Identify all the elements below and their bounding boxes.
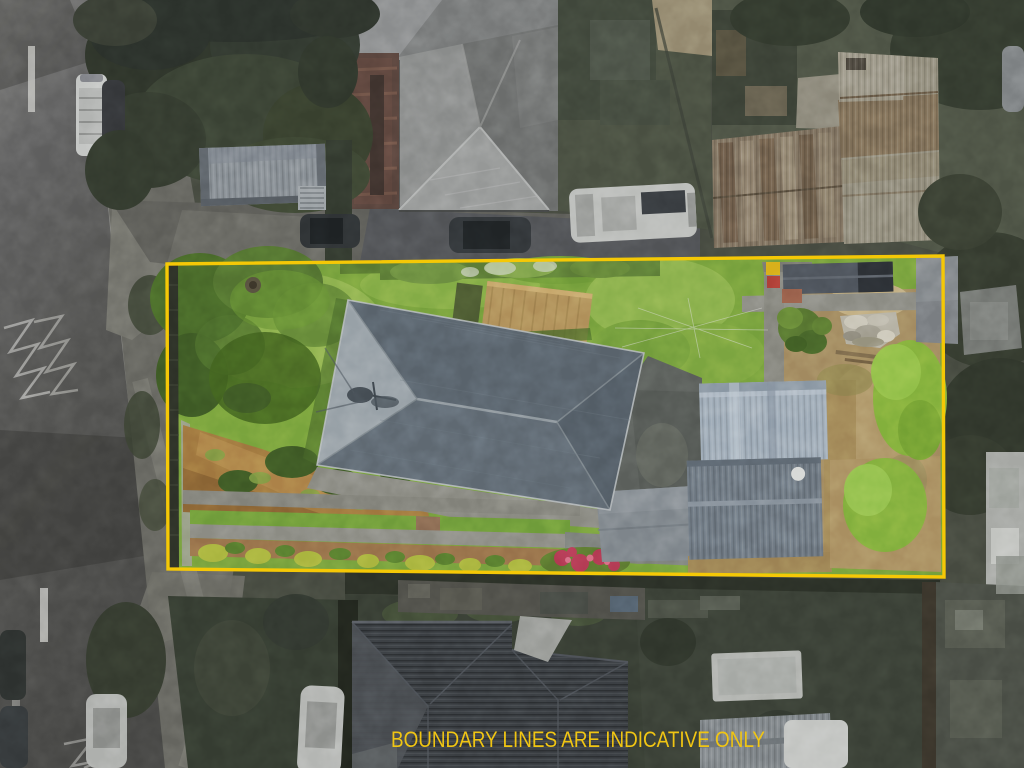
svg-text:BOUNDARY LINES ARE INDICATIVE: BOUNDARY LINES ARE INDICATIVE ONLY xyxy=(391,727,765,752)
